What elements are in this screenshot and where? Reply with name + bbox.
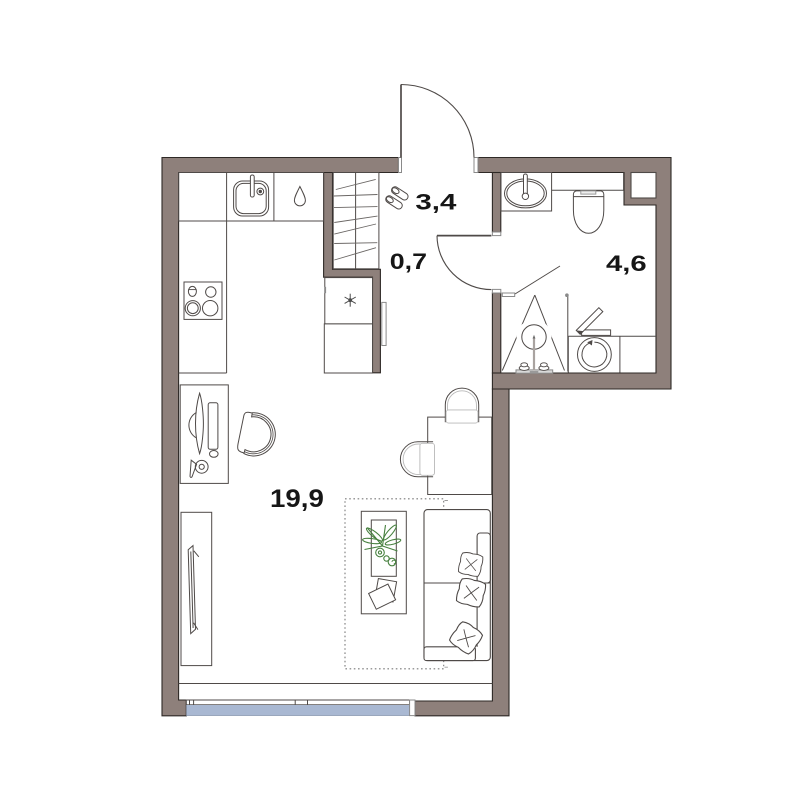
svg-text:4,6: 4,6 (606, 251, 647, 277)
svg-text:19,9: 19,9 (270, 484, 324, 512)
svg-text:0,7: 0,7 (390, 250, 427, 275)
svg-text:3,4: 3,4 (415, 189, 456, 215)
